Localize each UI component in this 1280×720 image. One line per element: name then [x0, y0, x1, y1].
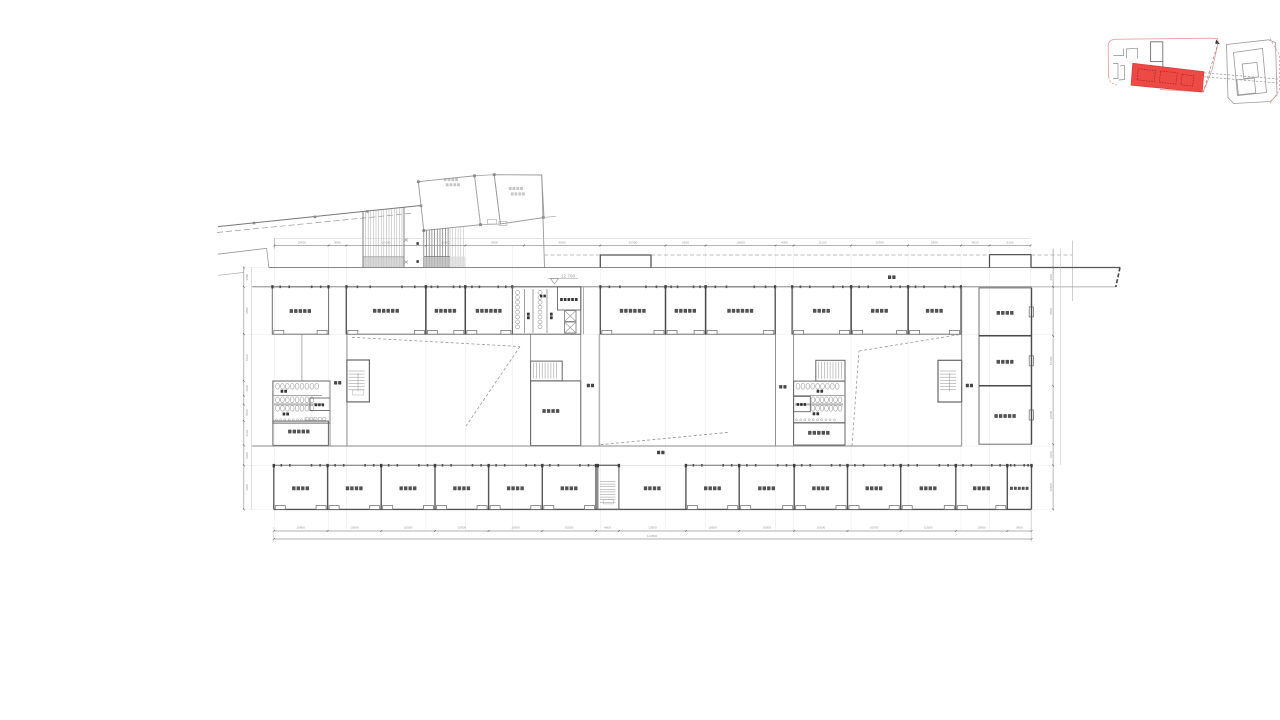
svg-text:4000: 4000 [334, 241, 341, 245]
svg-text:10500: 10500 [404, 526, 413, 530]
svg-text:10500: 10500 [875, 241, 884, 245]
svg-text:10500: 10500 [565, 526, 574, 530]
svg-text:10500: 10500 [924, 526, 933, 530]
svg-text:11100: 11100 [818, 241, 826, 245]
svg-text:10500: 10500 [870, 526, 879, 530]
svg-text:12.700: 12.700 [561, 273, 575, 278]
svg-text:10400: 10400 [297, 241, 306, 245]
svg-text:4900: 4900 [245, 385, 249, 392]
svg-text:10500: 10500 [457, 526, 466, 530]
svg-text:3800: 3800 [245, 273, 249, 280]
svg-text:9500: 9500 [245, 307, 249, 314]
svg-text:6900: 6900 [245, 452, 249, 459]
svg-text:4100: 4100 [1049, 451, 1053, 458]
svg-text:10500: 10500 [708, 526, 717, 530]
svg-text:10500: 10500 [441, 241, 450, 245]
svg-text:5100: 5100 [245, 354, 249, 361]
svg-text:9500: 9500 [1049, 308, 1053, 315]
svg-text:10400: 10400 [629, 241, 638, 245]
svg-text:10800: 10800 [296, 526, 305, 530]
svg-text:3800: 3800 [1016, 526, 1023, 530]
svg-text:10500: 10500 [762, 526, 771, 530]
svg-text:10100: 10100 [1049, 356, 1053, 365]
svg-text:10500: 10500 [350, 526, 359, 530]
svg-text:6500: 6500 [931, 241, 938, 245]
svg-text:114500: 114500 [647, 534, 657, 538]
svg-text:3000: 3000 [245, 484, 249, 491]
svg-text:4600: 4600 [604, 526, 611, 530]
svg-text:12500: 12500 [1049, 483, 1053, 492]
svg-text:9100: 9100 [1007, 241, 1014, 245]
svg-text:6500: 6500 [682, 241, 689, 245]
svg-text:4600: 4600 [972, 241, 979, 245]
svg-text:10500: 10500 [736, 241, 745, 245]
svg-text:10500: 10500 [977, 526, 986, 530]
svg-text:10500: 10500 [1049, 410, 1053, 419]
svg-text:4000: 4000 [781, 241, 788, 245]
svg-text:6500: 6500 [491, 241, 498, 245]
svg-text:10500: 10500 [817, 526, 826, 530]
svg-text:13500: 13500 [648, 526, 657, 530]
svg-text:10500: 10500 [511, 526, 520, 530]
svg-text:4100: 4100 [245, 430, 249, 437]
svg-text:6000: 6000 [559, 241, 566, 245]
svg-text:10100: 10100 [382, 241, 391, 245]
svg-text:4600: 4600 [1049, 274, 1053, 281]
svg-text:7000: 7000 [245, 409, 249, 416]
